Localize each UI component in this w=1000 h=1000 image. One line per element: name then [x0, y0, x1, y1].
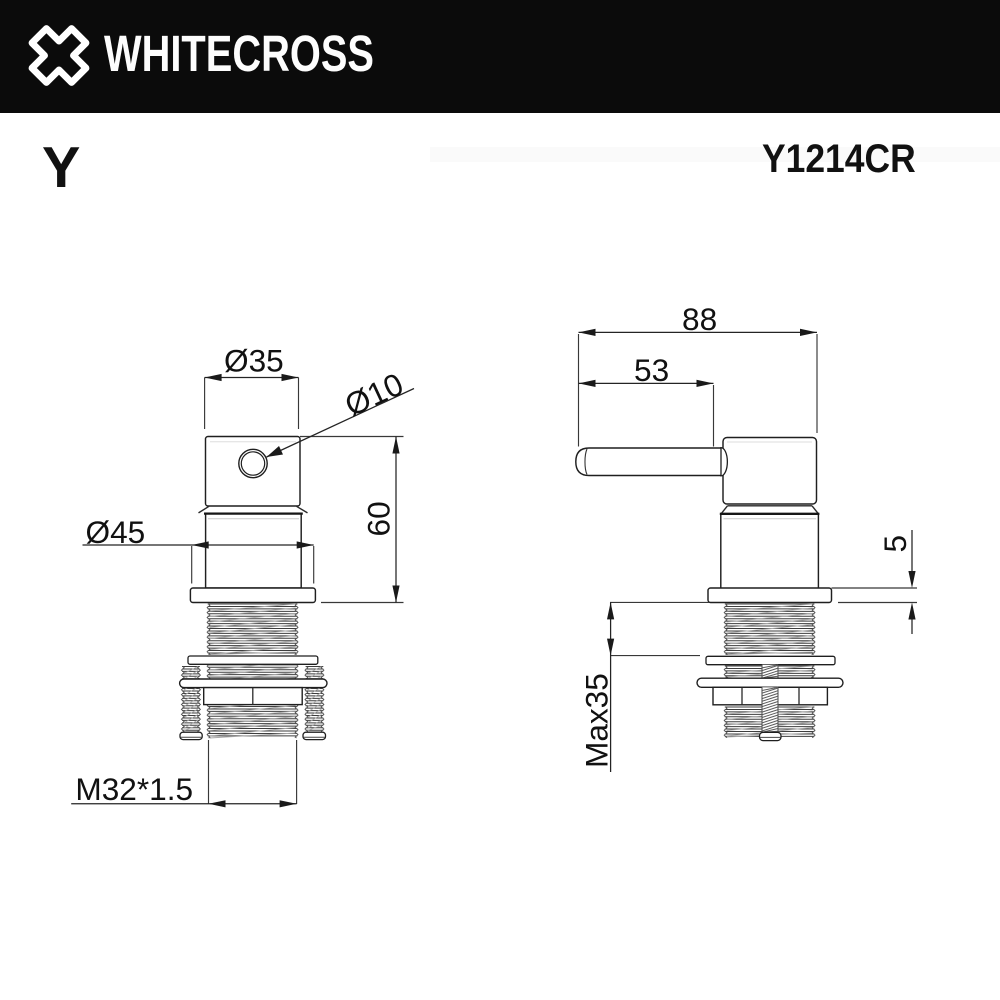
- svg-text:5: 5: [877, 535, 913, 553]
- svg-text:60: 60: [361, 501, 397, 536]
- svg-text:Ø45: Ø45: [86, 514, 146, 550]
- svg-text:53: 53: [634, 352, 669, 388]
- svg-text:Ø10: Ø10: [339, 365, 408, 423]
- svg-text:M32*1.5: M32*1.5: [75, 771, 193, 807]
- svg-text:Max35: Max35: [579, 673, 615, 768]
- svg-text:88: 88: [682, 301, 717, 337]
- svg-text:Ø35: Ø35: [224, 343, 284, 379]
